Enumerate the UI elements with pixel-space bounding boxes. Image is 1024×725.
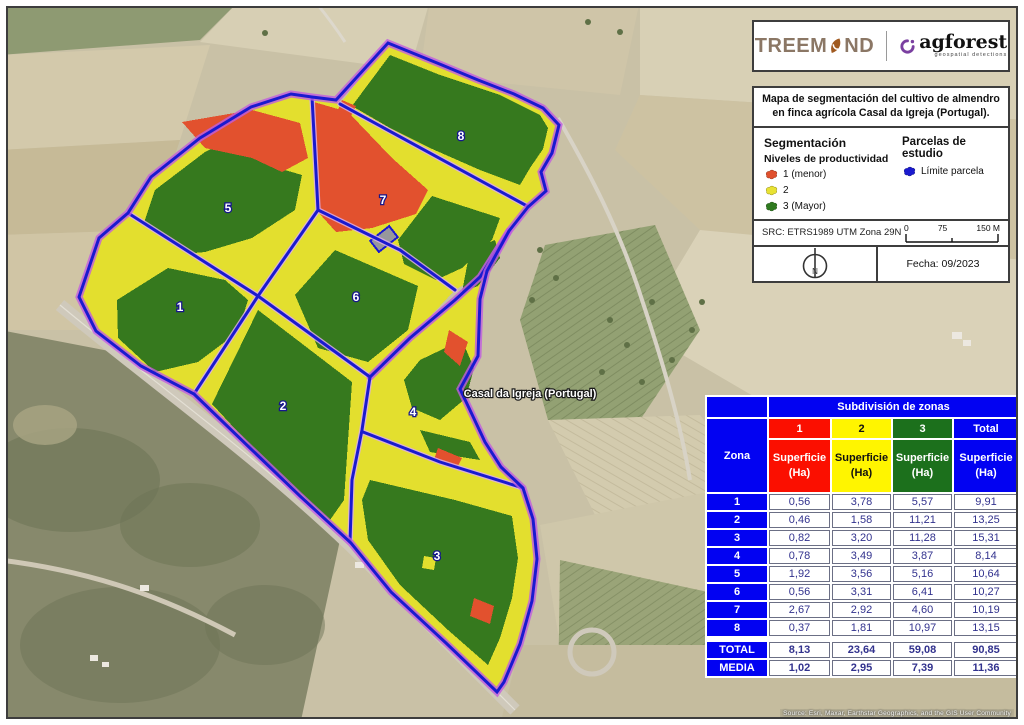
zone-label-6: 6 [353, 290, 360, 304]
row-value: 3,20 [832, 530, 891, 546]
level-2-label: 2 [783, 185, 789, 196]
legend-item-limite: Límite parcela [902, 166, 1000, 177]
map-document: 1 2 3 4 5 6 7 8 Casal da Igreja (Portuga… [0, 0, 1024, 725]
zones-table: Subdivisión de zonas Zona 1 2 3 Total Su… [705, 395, 1008, 678]
agforest-logo: agforest geospatial detections [899, 33, 1007, 59]
col-header-2: 2 [832, 419, 891, 438]
scale-tick-75: 75 [938, 223, 947, 233]
legend-panel: Mapa de segmentación del cultivo de alme… [752, 86, 1010, 283]
total-row: TOTAL 8,13 23,64 59,08 90,85 [707, 642, 1018, 658]
level-1-label: 1 (menor) [783, 169, 826, 180]
table-row: 4 0,78 3,49 3,87 8,14 [707, 548, 1018, 564]
total-label: TOTAL [707, 642, 767, 658]
row-value: 11,28 [893, 530, 952, 546]
table-row: 8 0,37 1,81 10,97 13,15 [707, 620, 1018, 636]
row-value: 13,15 [954, 620, 1018, 636]
zone-label-3: 3 [434, 549, 441, 563]
treemond-text-left: TREEM [755, 35, 828, 58]
row-value: 0,56 [769, 494, 830, 510]
level-2-splat-icon [764, 185, 778, 196]
table-row: 5 1,92 3,56 5,16 10,64 [707, 566, 1018, 582]
table-corner-cell [707, 397, 767, 417]
total-value: 90,85 [954, 642, 1018, 658]
row-zona: 4 [707, 548, 767, 564]
north-arrow-icon: N [798, 247, 832, 281]
limite-parcela-label: Límite parcela [921, 166, 984, 177]
legend-area: Segmentación Niveles de productividad 1 … [754, 128, 1008, 219]
row-value: 5,16 [893, 566, 952, 582]
row-value: 3,56 [832, 566, 891, 582]
north-fecha-row: N Fecha: 09/2023 [754, 245, 1008, 281]
parcelas-heading: Parcelas de estudio [902, 136, 1000, 160]
limite-parcela-icon [902, 166, 916, 177]
row-value: 2,92 [832, 602, 891, 618]
level-3-label: 3 (Mayor) [783, 201, 826, 212]
row-value: 3,49 [832, 548, 891, 564]
row-zona: 1 [707, 494, 767, 510]
row-value: 0,37 [769, 620, 830, 636]
row-value: 6,41 [893, 584, 952, 600]
zone-label-2: 2 [280, 399, 287, 413]
place-label: Casal da Igreja (Portugal) [464, 388, 597, 400]
total-value: 23,64 [832, 642, 891, 658]
scale-tick-150: 150 M [976, 223, 1000, 233]
superficie-header-total: Superficie(Ha) [954, 440, 1018, 492]
zona-header: Zona [707, 419, 767, 492]
map-title-line2: en finca agrícola Casal da Igreja (Portu… [772, 107, 989, 119]
table-row: 2 0,46 1,58 11,21 13,25 [707, 512, 1018, 528]
table-row: 1 0,56 3,78 5,57 9,91 [707, 494, 1018, 510]
total-value: 8,13 [769, 642, 830, 658]
basemap-attribution: Source: Esri, Maxar, Earthstar Geographi… [780, 709, 1014, 718]
zone-label-1: 1 [177, 300, 184, 314]
map-title: Mapa de segmentación del cultivo de alme… [754, 88, 1008, 128]
row-value: 0,78 [769, 548, 830, 564]
table-row: 6 0,56 3,31 6,41 10,27 [707, 584, 1018, 600]
row-value: 10,64 [954, 566, 1018, 582]
niveles-heading: Niveles de productividad [764, 153, 902, 165]
superficie-header-1: Superficie(Ha) [769, 440, 830, 492]
row-value: 3,78 [832, 494, 891, 510]
map-title-line1: Mapa de segmentación del cultivo de alme… [762, 93, 1000, 105]
row-zona: 7 [707, 602, 767, 618]
segmentacion-heading: Segmentación [764, 136, 902, 150]
logo-separator [886, 31, 887, 61]
zone-label-8: 8 [458, 129, 465, 143]
src-row: SRC: ETRS1989 UTM Zona 29N 0 75 150 M [754, 219, 1008, 245]
row-value: 1,92 [769, 566, 830, 582]
agforest-name: agforest [919, 33, 1007, 52]
scale-bar-graphic [904, 234, 1000, 243]
treemond-logo: TREEM ND [755, 35, 874, 58]
col-header-1: 1 [769, 419, 830, 438]
row-zona: 2 [707, 512, 767, 528]
media-value: 2,95 [832, 660, 891, 676]
table-row: 3 0,82 3,20 11,28 15,31 [707, 530, 1018, 546]
agforest-tagline: geospatial detections [935, 53, 1008, 59]
zone-label-4: 4 [410, 405, 417, 419]
media-row: MEDIA 1,02 2,95 7,39 11,36 [707, 660, 1018, 676]
crs-label: SRC: ETRS1989 UTM Zona 29N [762, 227, 904, 238]
media-label: MEDIA [707, 660, 767, 676]
table-title: Subdivisión de zonas [769, 397, 1018, 417]
row-zona: 6 [707, 584, 767, 600]
row-zona: 5 [707, 566, 767, 582]
row-value: 0,46 [769, 512, 830, 528]
table-row: 7 2,67 2,92 4,60 10,19 [707, 602, 1018, 618]
row-value: 11,21 [893, 512, 952, 528]
zone-label-5: 5 [225, 201, 232, 215]
row-value: 8,14 [954, 548, 1018, 564]
row-value: 13,25 [954, 512, 1018, 528]
row-value: 5,57 [893, 494, 952, 510]
almond-icon [828, 36, 843, 56]
scale-bar: 0 75 150 M [904, 223, 1000, 243]
legend-item-level-2: 2 [764, 185, 902, 196]
row-value: 0,82 [769, 530, 830, 546]
row-value: 3,31 [832, 584, 891, 600]
row-zona: 3 [707, 530, 767, 546]
level-1-splat-icon [764, 169, 778, 180]
legend-item-level-3: 3 (Mayor) [764, 201, 902, 212]
row-value: 4,60 [893, 602, 952, 618]
row-value: 10,19 [954, 602, 1018, 618]
logo-box: TREEM ND agforest geospatial detections [752, 20, 1010, 72]
row-value: 1,81 [832, 620, 891, 636]
zone-label-7: 7 [380, 193, 387, 207]
legend-item-level-1: 1 (menor) [764, 169, 902, 180]
media-value: 1,02 [769, 660, 830, 676]
media-value: 11,36 [954, 660, 1018, 676]
row-value: 0,56 [769, 584, 830, 600]
row-value: 3,87 [893, 548, 952, 564]
scale-tick-0: 0 [904, 223, 909, 233]
treemond-text-right: ND [844, 35, 874, 58]
level-3-splat-icon [764, 201, 778, 212]
row-value: 15,31 [954, 530, 1018, 546]
row-value: 10,27 [954, 584, 1018, 600]
fecha-label: Fecha: 09/2023 [876, 247, 1008, 281]
col-header-total: Total [954, 419, 1018, 438]
row-value: 1,58 [832, 512, 891, 528]
row-value: 2,67 [769, 602, 830, 618]
row-zona: 8 [707, 620, 767, 636]
table-spacer [707, 638, 1018, 640]
col-header-3: 3 [893, 419, 952, 438]
total-value: 59,08 [893, 642, 952, 658]
media-value: 7,39 [893, 660, 952, 676]
north-letter: N [812, 267, 818, 276]
superficie-header-2: Superficie(Ha) [832, 440, 891, 492]
superficie-header-3: Superficie(Ha) [893, 440, 952, 492]
agforest-swirl-icon [899, 38, 916, 55]
row-value: 9,91 [954, 494, 1018, 510]
row-value: 10,97 [893, 620, 952, 636]
